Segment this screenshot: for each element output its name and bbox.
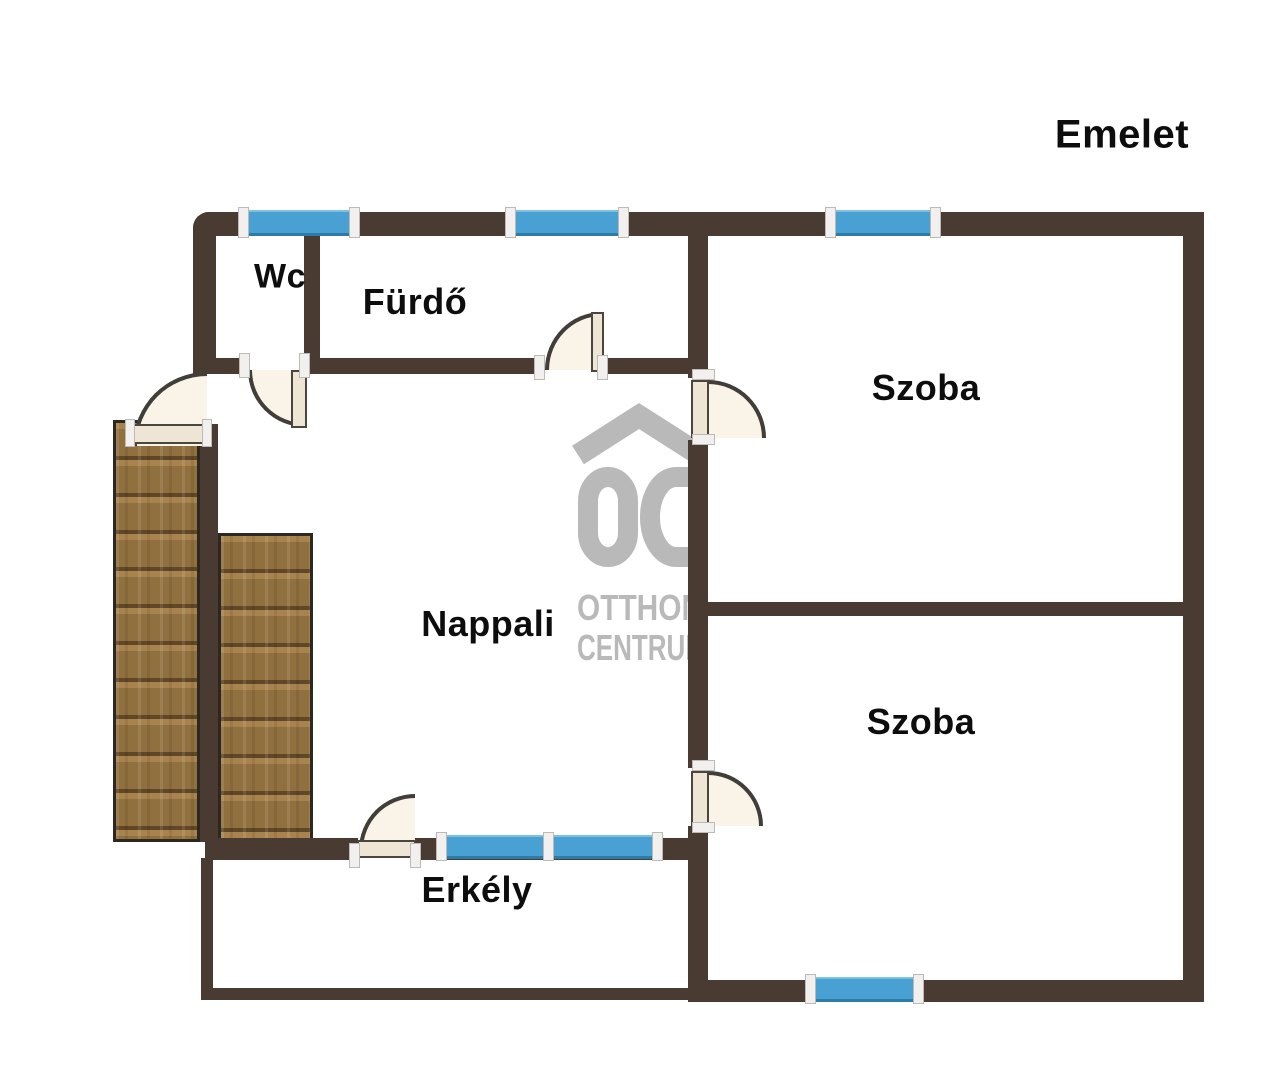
wall-hall-c bbox=[602, 358, 688, 374]
door-leaf-szoba-felso bbox=[691, 380, 709, 438]
window-frame-cap bbox=[436, 832, 447, 861]
wall-hall-b bbox=[305, 358, 545, 374]
window-wc bbox=[246, 210, 352, 236]
wall-center-c bbox=[688, 826, 708, 1002]
window-nappali-right bbox=[551, 835, 655, 859]
room-label-erkely: Erkély bbox=[421, 869, 532, 911]
wall-erkely-bottom bbox=[201, 988, 691, 1000]
wall-szoba-divider bbox=[708, 602, 1183, 616]
door-jamb bbox=[239, 353, 250, 378]
wall-center-b bbox=[688, 440, 708, 768]
door-jamb bbox=[534, 355, 545, 380]
staircase-outer-flight bbox=[113, 420, 200, 842]
door-jamb bbox=[349, 843, 360, 868]
floor-title: Emelet bbox=[1055, 113, 1189, 158]
window-furdo bbox=[513, 210, 621, 236]
window-frame-cap bbox=[618, 207, 629, 238]
door-leaf-wc bbox=[291, 370, 307, 428]
wall-right bbox=[1183, 212, 1204, 1002]
wall-left-upper bbox=[193, 212, 216, 374]
window-frame-cap bbox=[238, 207, 249, 238]
window-szoba-also bbox=[813, 977, 916, 1002]
window-frame-cap bbox=[913, 974, 924, 1004]
door-jamb bbox=[692, 369, 715, 380]
door-jamb bbox=[597, 355, 608, 380]
window-frame-cap bbox=[543, 832, 554, 861]
window-frame-cap bbox=[930, 207, 941, 238]
wall-stairwell bbox=[200, 424, 218, 842]
window-nappali-left bbox=[444, 835, 546, 859]
door-jamb bbox=[692, 822, 715, 833]
door-arc-szoba-also bbox=[708, 771, 763, 826]
door-jamb bbox=[692, 434, 715, 445]
window-szoba-felso bbox=[833, 210, 933, 236]
floorplan: OTTHON CENTRUM bbox=[0, 0, 1280, 1080]
watermark-line1: OTTHON bbox=[577, 587, 703, 628]
wall-bottom-szoba bbox=[688, 980, 1204, 1002]
window-frame-cap bbox=[652, 832, 663, 861]
wall-center-a bbox=[688, 236, 708, 378]
door-leaf-landing bbox=[130, 424, 210, 444]
window-frame-cap bbox=[825, 207, 836, 238]
window-frame-cap bbox=[805, 974, 816, 1004]
door-jamb bbox=[202, 419, 212, 447]
door-leaf-szoba-also bbox=[691, 771, 709, 826]
door-jamb bbox=[692, 760, 715, 771]
door-arc-szoba-felso bbox=[708, 380, 766, 438]
logo-letter-o bbox=[588, 477, 628, 557]
room-label-szoba-felso: Szoba bbox=[872, 367, 981, 409]
wall-erkely-left bbox=[201, 858, 213, 1000]
roof-chevron-icon bbox=[578, 416, 700, 455]
window-frame-cap bbox=[505, 207, 516, 238]
door-jamb bbox=[299, 353, 310, 378]
room-label-nappali: Nappali bbox=[421, 603, 555, 645]
door-jamb bbox=[125, 419, 135, 447]
wall-wc-divider bbox=[304, 236, 320, 358]
door-leaf-erkely bbox=[357, 840, 416, 858]
room-label-wc: Wc bbox=[254, 258, 306, 297]
room-label-furdo: Fürdő bbox=[363, 281, 467, 323]
room-label-szoba-also: Szoba bbox=[867, 701, 976, 743]
wall-nappali-bottom-a bbox=[205, 838, 358, 860]
window-frame-cap bbox=[349, 207, 360, 238]
door-jamb bbox=[410, 843, 421, 868]
staircase-inner-flight bbox=[218, 533, 313, 842]
